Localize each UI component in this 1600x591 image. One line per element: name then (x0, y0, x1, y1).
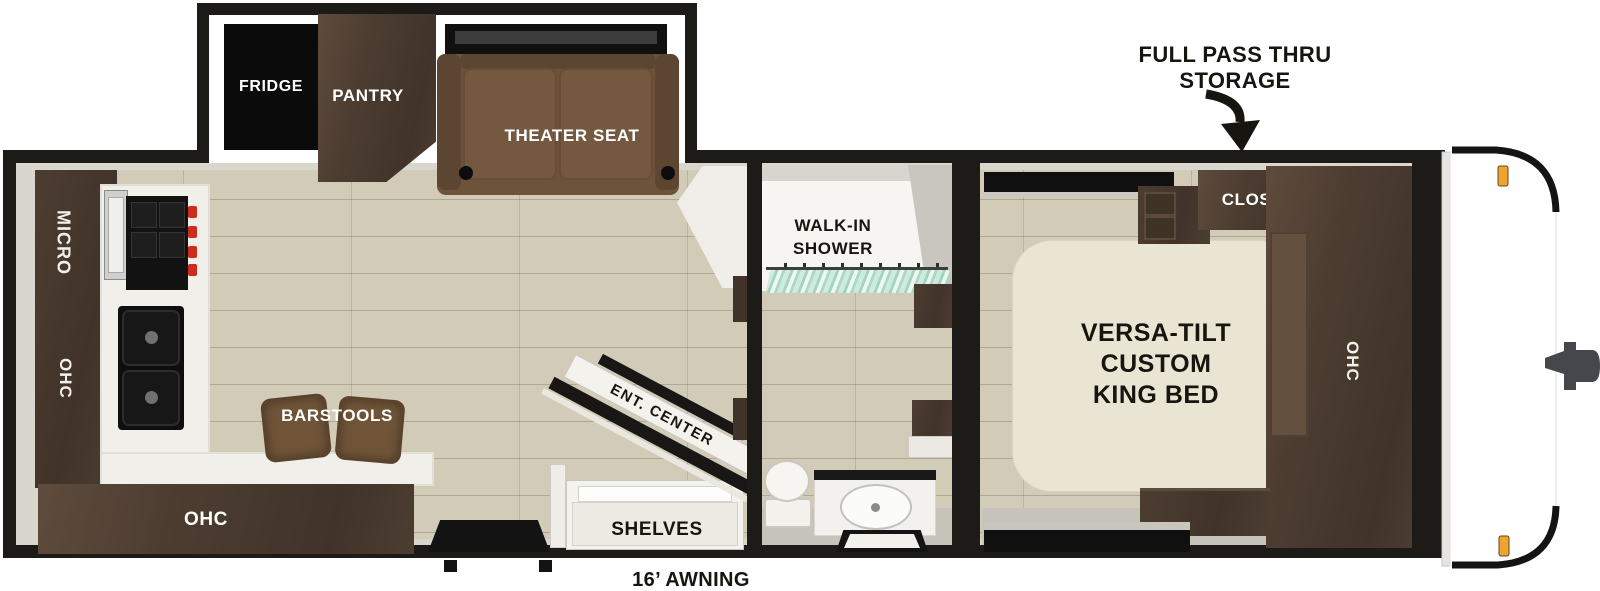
bathroom-wall-left (747, 163, 762, 558)
theater-seat-headrest (461, 54, 655, 69)
barstool (260, 393, 332, 464)
sink-drain (145, 331, 158, 344)
bedroom-window-bottom (984, 530, 1190, 552)
stove-knob (188, 206, 197, 218)
micro-label: MICRO (44, 196, 82, 288)
theater-seat-cushion (463, 68, 557, 180)
bedroom-window-sill-bottom (984, 522, 1190, 530)
bed-label-line1: VERSA-TILT (1056, 318, 1256, 349)
bathroom-cabinet (914, 284, 952, 328)
awning-arm (539, 560, 552, 572)
bathroom-wall-right (952, 163, 980, 558)
bed-label-line2: CUSTOM (1056, 349, 1256, 380)
bath-mat-center (844, 534, 920, 548)
theater-seat-arm-left (437, 54, 461, 190)
bed-label-line3: KING BED (1056, 380, 1256, 411)
cap-body (1450, 152, 1556, 566)
theater-seat-cushion (559, 68, 653, 180)
arrow-shaft (1206, 94, 1240, 122)
awning-label: 16’ AWNING (600, 569, 782, 591)
wardrobe-panel (1270, 232, 1308, 437)
stove-burner (131, 232, 157, 258)
stove-knob (188, 226, 197, 238)
theater-seat-cupholder (459, 166, 473, 180)
stove-burner (159, 232, 185, 258)
closet-door (1144, 192, 1176, 216)
stove-knob (188, 264, 197, 276)
front-cap (1406, 136, 1600, 584)
marker-light-bottom (1499, 536, 1509, 556)
wall-panel (733, 276, 748, 322)
shelf-tier (572, 502, 738, 546)
toilet (764, 460, 810, 502)
awning-arm (444, 560, 457, 572)
bathroom-cabinet (912, 400, 952, 438)
marker-light-top (1498, 166, 1508, 186)
partition-stub-wall (550, 464, 566, 548)
stove-burner (131, 202, 157, 228)
arrow-head (1221, 120, 1260, 152)
storage-callout-line1: FULL PASS THRU (1118, 42, 1352, 68)
slideout-window-glass (455, 31, 657, 44)
closet-door (1144, 216, 1176, 240)
bedroom-ohc-label: OHC (1334, 322, 1370, 400)
vanity-backsplash (814, 470, 936, 480)
storage-arrow (1198, 88, 1278, 158)
microwave-door (108, 197, 124, 273)
rv-floorplan: FRIDGE PANTRY THEATER SEAT MICRO OHC OHC… (0, 0, 1600, 591)
bathroom-shelf (908, 436, 954, 458)
wall-panel (733, 398, 748, 440)
barstool (334, 395, 405, 465)
toilet-tank (764, 498, 812, 528)
kitchen-base-cabinet (38, 484, 414, 554)
bathroom-sink-drain (871, 503, 880, 512)
stove-knob (188, 246, 197, 258)
storage-callout: FULL PASS THRU STORAGE (1118, 42, 1352, 94)
sink-drain (145, 391, 158, 404)
entry-door-mat (428, 520, 550, 552)
bed-label: VERSA-TILT CUSTOM KING BED (1056, 318, 1256, 411)
ohc-wall-label: OHC (48, 342, 82, 414)
theater-seat-cupholder (661, 166, 675, 180)
stove-burner (159, 202, 185, 228)
